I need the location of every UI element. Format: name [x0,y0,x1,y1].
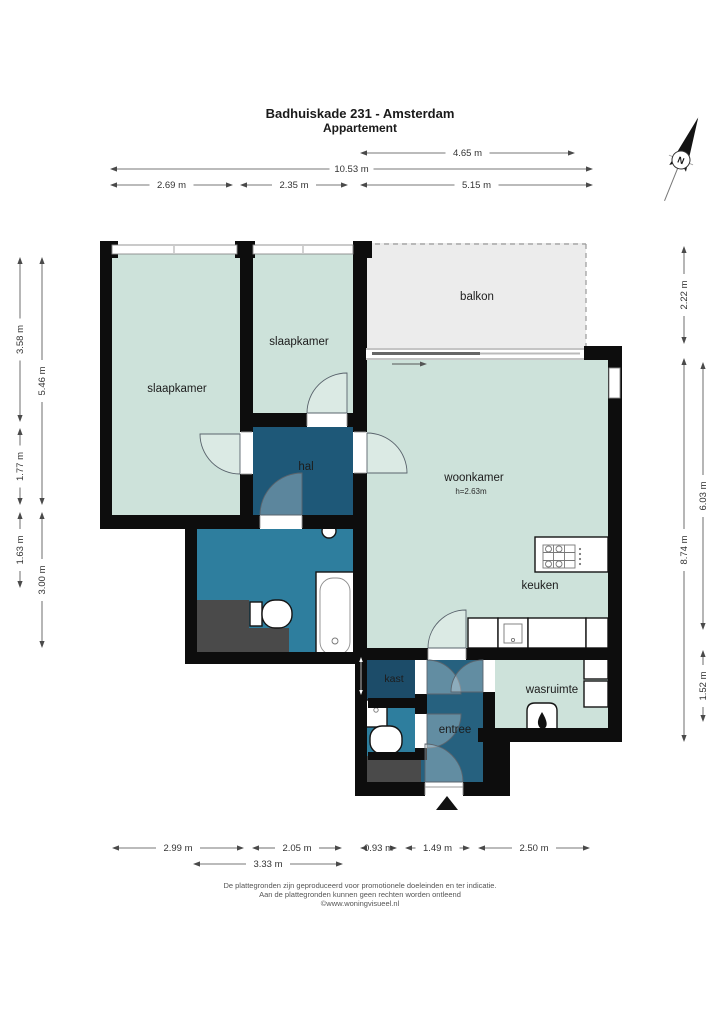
dimension: 2.05 m [252,843,342,854]
dimension: 3.58 m [15,257,26,422]
dimension-label: 1.49 m [423,843,452,854]
dimension-label: 2.05 m [282,843,311,854]
room-label-hal: hal [298,461,313,473]
dimension: 6.03 m [698,362,709,630]
dimension: 1.49 m [405,843,470,854]
room-label-entree: entree [439,724,472,736]
floorplan-page: Badhuiskade 231 - Amsterdam Appartement [0,0,720,1018]
footer-line-1: De plattegronden zijn geproduceerd voor … [0,881,720,890]
dimension: 3.00 m [37,512,48,648]
dimension-label: 2.35 m [279,180,308,191]
dimension: 8.74 m [679,358,690,742]
dimension: 2.35 m [240,180,348,191]
room-label-balkon: balkon [460,291,494,303]
room-label-kast: kast [384,673,403,685]
bathtub [316,572,354,660]
room-label-ceiling-height: h=2.63m [455,487,487,496]
dimension-label: 10.53 m [334,164,368,175]
dimension-label: 1.52 m [698,671,709,700]
dimension-label: 8.74 m [679,535,690,564]
room-woonkamer [360,352,615,654]
dimension: 2.69 m [110,180,233,191]
front-door-opening [425,782,463,796]
dimension: 2.50 m [478,843,590,854]
dimension: 10.53 m [110,164,593,175]
floor-plan-svg: slaapkamer slaapkamer balkon woonkamer h… [0,0,720,1018]
dimension: 2.22 m [679,246,690,344]
washer-dryer [584,655,608,707]
dimension-label: 5.15 m [462,180,491,191]
room-label-wasruimte: wasruimte [525,684,578,696]
dimension-label: 1.63 m [15,535,26,564]
dimension-label: 4.65 m [453,148,482,159]
dimension-label: 2.69 m [157,180,186,191]
footer-disclaimer: De plattegronden zijn geproduceerd voor … [0,881,720,908]
dimension: 1.63 m [15,512,26,588]
dimension-label: 3.58 m [15,325,26,354]
room-label-slaapkamer-2: slaapkamer [269,336,329,348]
footer-line-2: Aan de plattegronden kunnen geen rechten… [0,890,720,899]
dimension: 1.52 m [698,650,709,722]
dimension-label: 2.22 m [679,280,690,309]
dimension-label: 0.93 m [364,843,393,854]
dimension: 3.33 m [193,859,343,870]
kitchen-counter [468,618,608,648]
dimension: 5.15 m [360,180,593,191]
dimension-label: 2.99 m [163,843,192,854]
room-label-slaapkamer-1: slaapkamer [147,383,207,395]
compass-icon: N [652,112,710,205]
dimension: 0.93 m [360,843,397,854]
badkamer-shaft-top [197,600,249,630]
window-slaapkamer-2 [253,245,353,254]
dimension: 4.65 m [360,148,575,159]
room-label-keuken: keuken [521,580,558,592]
entrance-arrow [436,796,458,810]
room-label-woonkamer: woonkamer [443,472,504,484]
dimension: 1.77 m [15,428,26,505]
dimension-label: 3.00 m [37,565,48,594]
dimension-label: 5.46 m [37,366,48,395]
kitchen-island [535,537,608,572]
toilet-badkamer [250,600,292,628]
dimension: 5.46 m [37,257,48,505]
dimension-label: 3.33 m [253,859,282,870]
footer-line-3: ©www.woningvisueel.nl [0,899,720,908]
dimension-label: 1.77 m [15,452,26,481]
dimension-label: 6.03 m [698,481,709,510]
dimension-label: 2.50 m [519,843,548,854]
window-slaapkamer-1 [112,245,237,254]
dimension: 2.99 m [112,843,244,854]
window-woonkamer-right [609,368,620,398]
